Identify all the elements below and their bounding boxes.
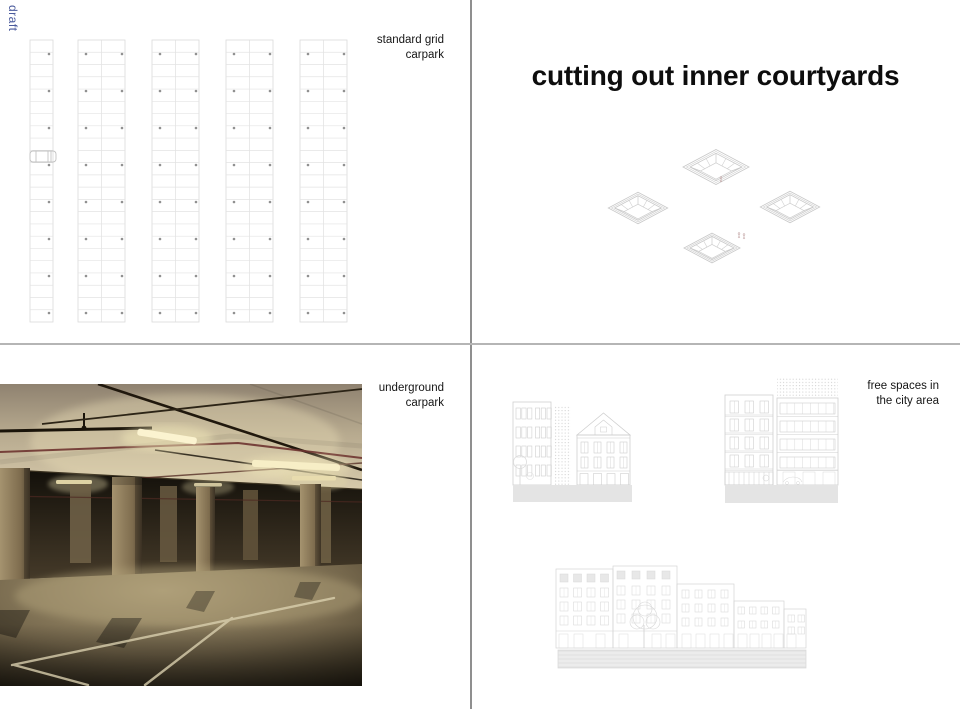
caption-line: the city area (779, 394, 939, 409)
parking-grid-drawing (30, 40, 347, 322)
caption-line: carpark (284, 48, 444, 63)
caption-line: free spaces in (779, 379, 939, 394)
car-plan-icon (30, 151, 56, 162)
caption-standard-grid-carpark: standard grid carpark (284, 33, 444, 62)
underground-carpark-photo (0, 384, 362, 686)
photo-floor (0, 564, 362, 686)
elevation-street-drawing (556, 566, 806, 668)
page-title: cutting out inner courtyards (471, 60, 960, 92)
caption-line: standard grid (284, 33, 444, 48)
elevation-left-drawing (513, 402, 632, 502)
courtyard-isometric-drawing (608, 150, 819, 263)
vertical-divider (470, 0, 472, 709)
caption-free-spaces: free spaces in the city area (779, 379, 939, 408)
presentation-page: draft standard grid carpark cutting out … (0, 0, 960, 709)
horizontal-divider (0, 343, 960, 345)
